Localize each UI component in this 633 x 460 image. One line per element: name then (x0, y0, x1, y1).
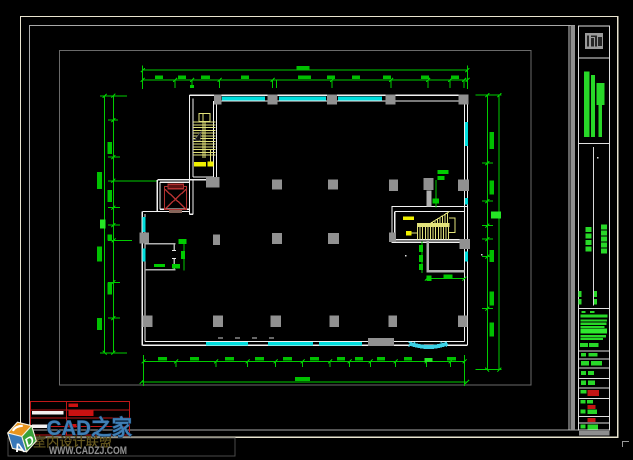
svg-text:WWW.CADZJ.COM: WWW.CADZJ.COM (49, 445, 127, 457)
svg-text:CAD之家: CAD之家 (47, 415, 133, 440)
